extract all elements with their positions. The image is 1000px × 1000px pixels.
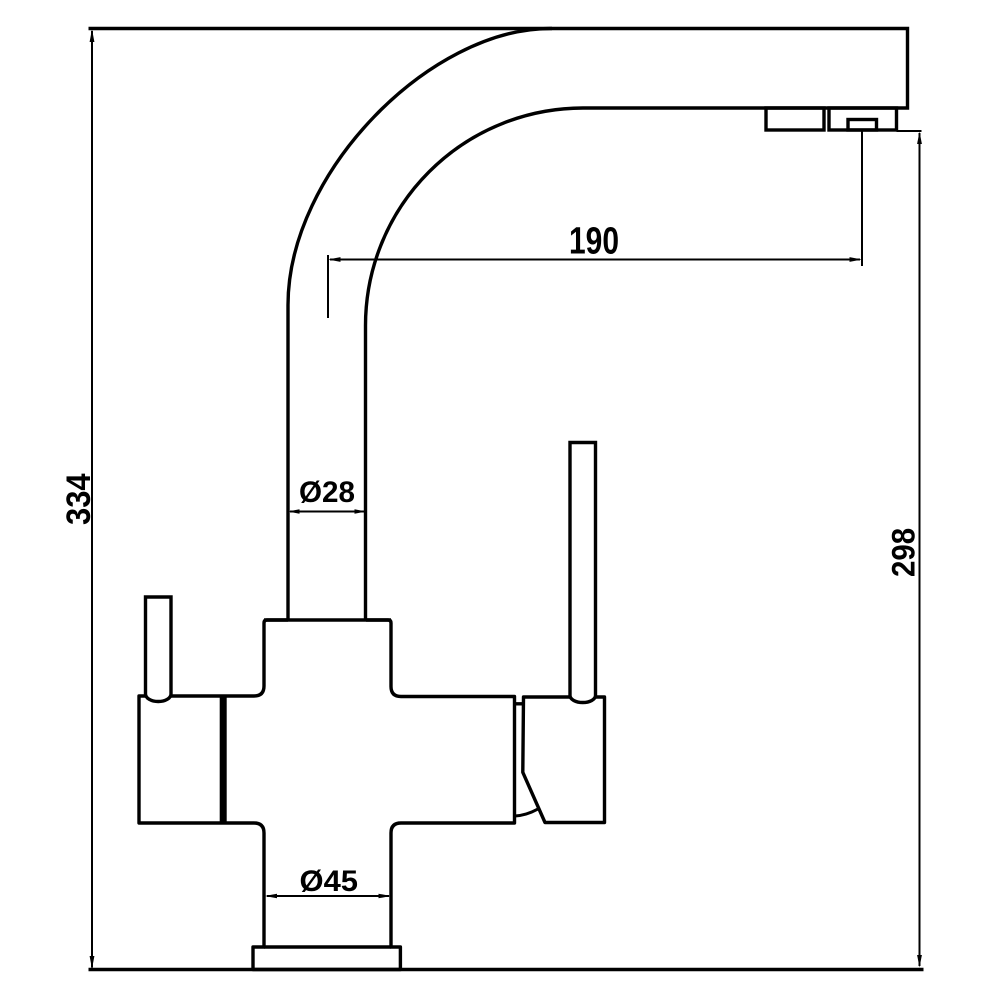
svg-text:Ø45: Ø45 (300, 865, 359, 898)
svg-text:Ø28: Ø28 (299, 476, 355, 509)
svg-text:334: 334 (60, 473, 98, 525)
svg-text:298: 298 (886, 528, 922, 577)
svg-text:190: 190 (569, 221, 619, 263)
